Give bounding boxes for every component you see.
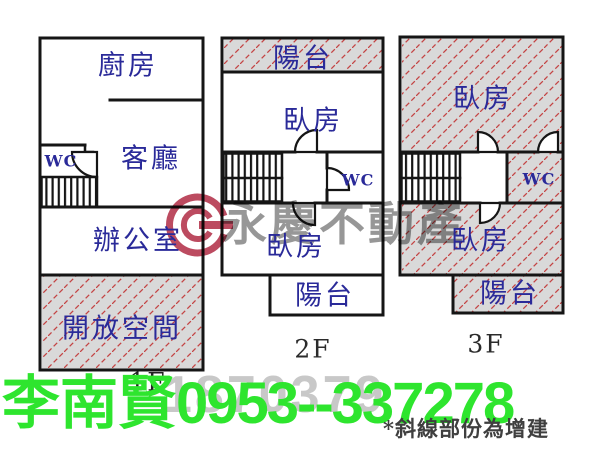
label-open-space: 開放空間 xyxy=(62,307,182,346)
hatch-legend-note: *斜線部份為增建 xyxy=(383,413,549,443)
label-floor-3f: 3F xyxy=(467,330,504,359)
stairs-1f xyxy=(42,177,98,207)
label-balcony-top-2f: 陽台 xyxy=(273,37,333,76)
label-wc-2f: WC xyxy=(342,171,375,190)
label-balcony-bottom-2f: 陽台 xyxy=(295,274,355,313)
label-office: 辦公室 xyxy=(93,219,183,258)
label-bedroom-top-3f: 臥房 xyxy=(453,77,513,116)
label-balcony-3f: 陽台 xyxy=(480,272,540,311)
label-living: 客廳 xyxy=(121,137,181,176)
label-wc-1f: WC xyxy=(45,152,78,171)
label-floor-2f: 2F xyxy=(294,335,331,364)
label-bedroom-bottom-2f: 臥房 xyxy=(266,225,326,264)
watermark-brand-text: 永慶不動產 xyxy=(221,201,466,247)
label-bedroom-bottom-3f: 臥房 xyxy=(451,219,511,258)
agent-name: 李南賢 xyxy=(2,371,176,436)
label-bedroom-top-2f: 臥房 xyxy=(283,99,343,138)
label-kitchen: 廚房 xyxy=(98,44,158,83)
label-wc-3f: WC xyxy=(523,170,556,189)
floorplan-image: 永慶不動產 1870379 廚房 客廳 WC 辦公室 開放空間 1F 陽台 臥房… xyxy=(0,0,600,449)
